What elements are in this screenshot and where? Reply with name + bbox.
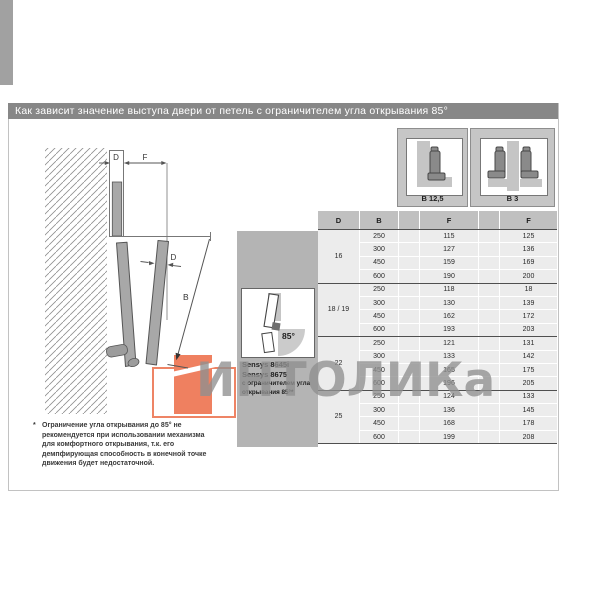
door-protrusion-diagram: D F D B xyxy=(28,125,233,425)
footnote-line: рекомендуется при использовании механизм… xyxy=(42,431,247,441)
wall-hatch xyxy=(45,148,107,414)
dim-label-f-top: F xyxy=(143,153,148,162)
column-header-f2: F xyxy=(500,211,557,229)
spacer-cell xyxy=(479,431,499,443)
f-value-cell: 118 xyxy=(420,284,478,296)
b-value-cell: 250 xyxy=(360,230,398,242)
b-value-cell: 250 xyxy=(360,284,398,296)
spacer-cell xyxy=(479,337,499,349)
closed-door xyxy=(112,182,121,236)
spacer-cell xyxy=(399,417,419,429)
b-value-cell: 600 xyxy=(360,324,398,336)
f-value-cell: 200 xyxy=(500,270,557,282)
b-value-cell: 450 xyxy=(360,257,398,269)
hinge-application-box-b125: B 12,5 xyxy=(397,128,468,207)
b-value-cell: 300 xyxy=(360,297,398,309)
b-value-cell: 600 xyxy=(360,431,398,443)
open-door-2 xyxy=(146,241,169,366)
angle-85-label: 85° xyxy=(282,331,295,341)
f-value-cell: 133 xyxy=(500,391,557,403)
b-value-cell: 450 xyxy=(360,417,398,429)
catalog-page: Как зависит значение выступа двери от пе… xyxy=(0,0,600,600)
f-value-cell: 208 xyxy=(500,431,557,443)
dimension-table: D B F F 16250115125300127136450159169600… xyxy=(318,211,557,444)
footnote-marker: * xyxy=(33,421,36,431)
spacer-cell xyxy=(399,284,419,296)
f-value-cell: 145 xyxy=(500,404,557,416)
hinge-application-box-b3: B 3 xyxy=(470,128,555,207)
f-value-cell: 172 xyxy=(500,310,557,322)
spacer-cell xyxy=(479,297,499,309)
table-group: 16250115125300127136450159169600190200 xyxy=(318,229,557,283)
dim-label-b: B xyxy=(183,292,189,302)
f-value-cell: 136 xyxy=(500,243,557,255)
shelf-line xyxy=(109,232,211,241)
spacer-cell xyxy=(399,243,419,255)
page-edge-strip xyxy=(0,0,13,85)
f-value-cell: 162 xyxy=(420,310,478,322)
page-title: Как зависит значение выступа двери от пе… xyxy=(8,103,558,119)
f-value-cell: 18 xyxy=(500,284,557,296)
hinge-b125-icon xyxy=(406,138,463,196)
table-group: 18 / 19250118183001301394501621726001932… xyxy=(318,283,557,337)
spacer-cell xyxy=(479,417,499,429)
f-value-cell: 125 xyxy=(500,230,557,242)
d-value-cell: 16 xyxy=(318,230,359,283)
f-value-cell: 131 xyxy=(500,337,557,349)
f-value-cell: 190 xyxy=(420,270,478,282)
b-value-cell: 450 xyxy=(360,310,398,322)
table-header-row: D B F F xyxy=(318,211,557,229)
spacer-cell xyxy=(479,257,499,269)
f-value-cell: 203 xyxy=(500,324,557,336)
sensys-85deg-icon: 85° xyxy=(241,288,315,358)
spacer-cell xyxy=(399,230,419,242)
footnote-line: Ограничение угла открывания до 85° не xyxy=(42,421,247,431)
hinge-box-label: B 12,5 xyxy=(398,194,467,203)
hinge-box-label: B 3 xyxy=(471,194,554,203)
spacer-cell xyxy=(399,310,419,322)
f-value-cell: 130 xyxy=(420,297,478,309)
f-value-cell: 142 xyxy=(500,351,557,363)
b-value-cell: 250 xyxy=(360,337,398,349)
footnote-line: демпфирующая способность в конечной точк… xyxy=(42,450,247,460)
spacer-cell xyxy=(479,310,499,322)
table-body: 1625011512530012713645015916960019020018… xyxy=(318,229,557,444)
spacer-cell xyxy=(399,324,419,336)
footnote-line: для комфортного открывания, т.к. его xyxy=(42,440,247,450)
column-header-f1: F xyxy=(420,211,478,229)
footnote-lines: Ограничение угла открывания до 85° не ре… xyxy=(33,421,247,469)
f-value-cell: 199 xyxy=(420,431,478,443)
watermark-text: ИНТОЛИКа xyxy=(196,357,495,404)
spacer-header xyxy=(479,211,499,229)
b-value-cell: 600 xyxy=(360,270,398,282)
spacer-cell xyxy=(479,230,499,242)
hinge-b3-icon xyxy=(480,138,548,196)
footnote-line: движения будет недостаточной. xyxy=(42,459,247,469)
f-value-cell: 127 xyxy=(420,243,478,255)
f-value-cell: 205 xyxy=(500,377,557,389)
column-header-b: B xyxy=(360,211,398,229)
spacer-cell xyxy=(479,324,499,336)
column-header-d: D xyxy=(318,211,359,229)
spacer-cell xyxy=(399,337,419,349)
f-value-cell: 115 xyxy=(420,230,478,242)
spacer-header xyxy=(399,211,419,229)
footnote: * Ограничение угла открывания до 85° не … xyxy=(33,421,247,469)
f-value-cell: 159 xyxy=(420,257,478,269)
dim-label-d-door: D xyxy=(171,253,177,262)
dim-label-d-top: D xyxy=(113,153,119,162)
spacer-cell xyxy=(399,257,419,269)
f-value-cell: 168 xyxy=(420,417,478,429)
sensys-product-panel: 85° Sensys 8645i Sensys 8675 с ограничит… xyxy=(237,231,318,447)
f-value-cell: 193 xyxy=(420,324,478,336)
spacer-cell xyxy=(399,297,419,309)
f-value-cell: 178 xyxy=(500,417,557,429)
spacer-cell xyxy=(399,431,419,443)
f-value-cell: 175 xyxy=(500,364,557,376)
spacer-cell xyxy=(399,270,419,282)
b-value-cell: 300 xyxy=(360,243,398,255)
spacer-cell xyxy=(479,284,499,296)
f-value-cell: 169 xyxy=(500,257,557,269)
spacer-cell xyxy=(479,270,499,282)
d-value-cell: 18 / 19 xyxy=(318,284,359,337)
f-value-cell: 121 xyxy=(420,337,478,349)
spacer-cell xyxy=(479,243,499,255)
f-value-cell: 139 xyxy=(500,297,557,309)
